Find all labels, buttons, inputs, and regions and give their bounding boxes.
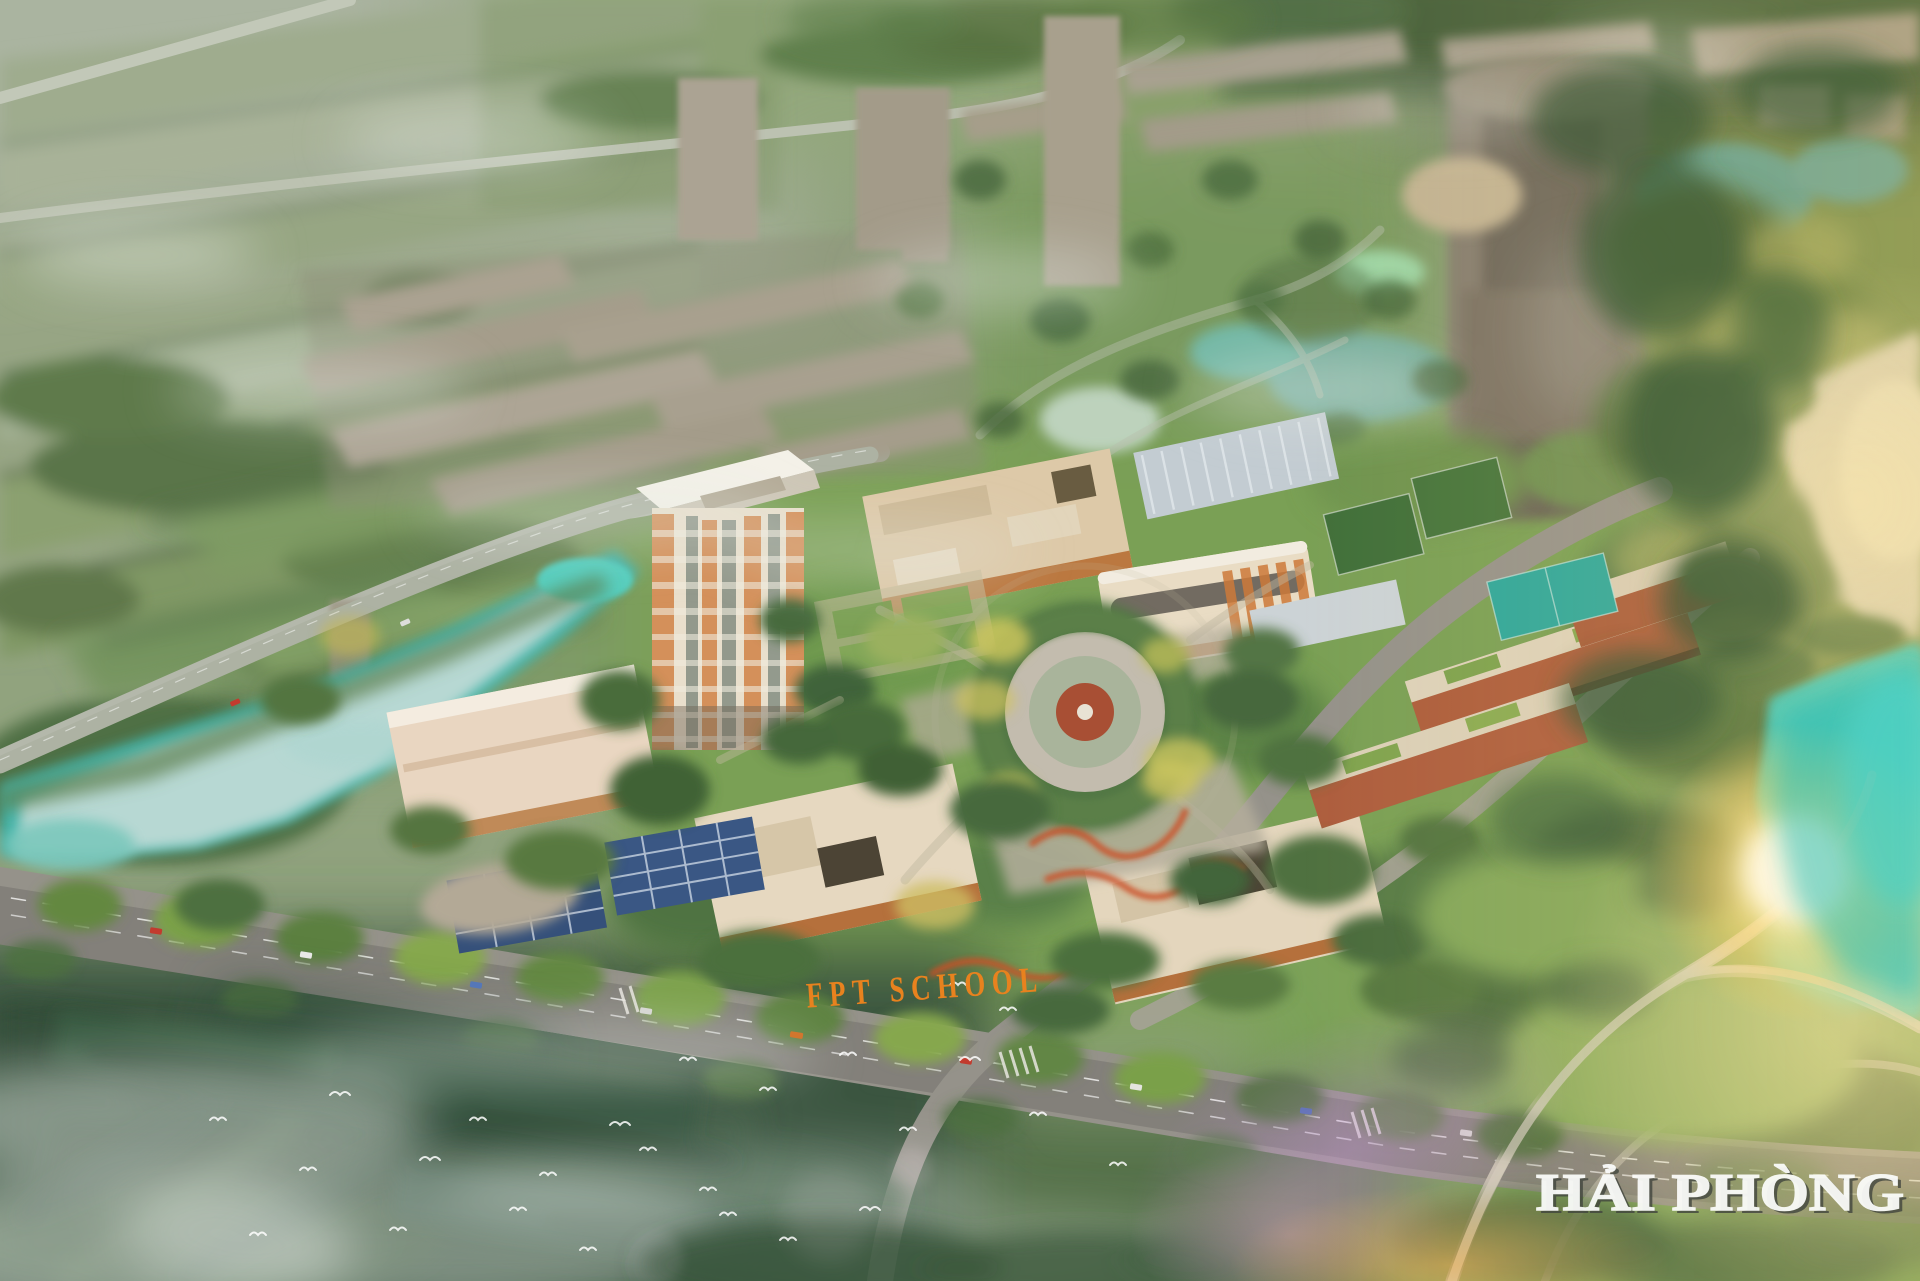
svg-text:HẢI PHÒNG: HẢI PHÒNG bbox=[1536, 1164, 1904, 1222]
